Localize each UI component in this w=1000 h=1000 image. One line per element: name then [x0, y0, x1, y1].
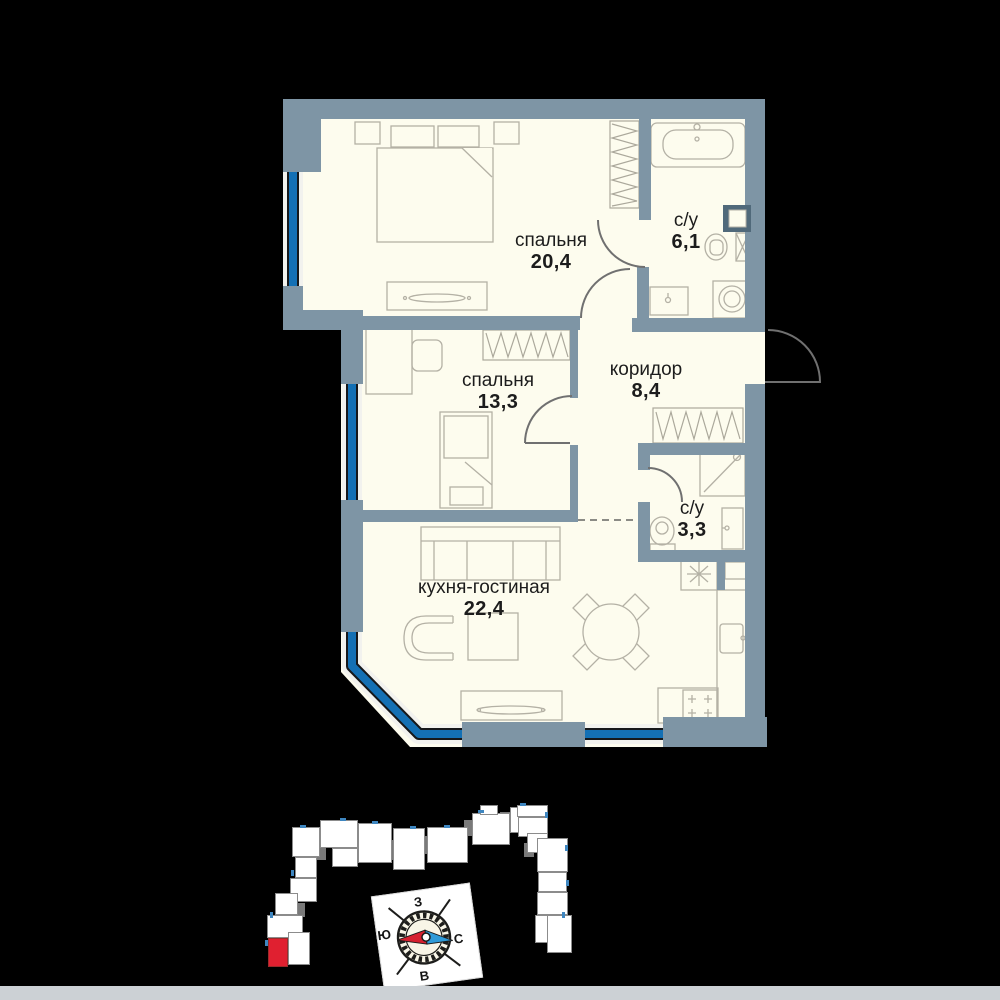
- building-block: [358, 823, 392, 863]
- building-block: [427, 827, 468, 863]
- window-tick: [444, 825, 450, 828]
- site-plan-map: [0, 0, 1000, 1000]
- building-block: [547, 915, 572, 953]
- building-block: [517, 805, 548, 817]
- compass-south: Ю: [377, 927, 392, 944]
- building-block: [292, 827, 320, 857]
- building-block: [288, 932, 310, 965]
- window-tick: [372, 821, 378, 824]
- window-tick: [478, 810, 484, 813]
- window-tick: [545, 812, 548, 818]
- window-tick: [340, 818, 346, 821]
- window-tick: [300, 825, 306, 828]
- building-block: [393, 828, 425, 870]
- window-tick: [562, 912, 565, 918]
- compass: З Ю С В: [371, 883, 483, 992]
- building-block: [275, 893, 298, 915]
- building-block: [472, 813, 510, 845]
- floorplan-page: спальня 20,4 с/у 6,1 спальня 13,3 коридо…: [0, 0, 1000, 1000]
- selected-unit-highlight: [268, 938, 288, 967]
- window-tick: [410, 826, 416, 829]
- building-block: [320, 820, 358, 848]
- building-block: [537, 838, 568, 872]
- building-block: [295, 857, 317, 878]
- building-block: [332, 848, 358, 867]
- window-tick: [565, 845, 568, 851]
- window-tick: [520, 803, 526, 806]
- compass-east: В: [419, 968, 430, 984]
- building-block: [538, 872, 567, 892]
- window-tick: [270, 912, 273, 918]
- window-tick: [566, 880, 569, 886]
- window-tick: [291, 870, 294, 876]
- compass-north: С: [453, 931, 464, 947]
- page-edge: [0, 986, 1000, 1000]
